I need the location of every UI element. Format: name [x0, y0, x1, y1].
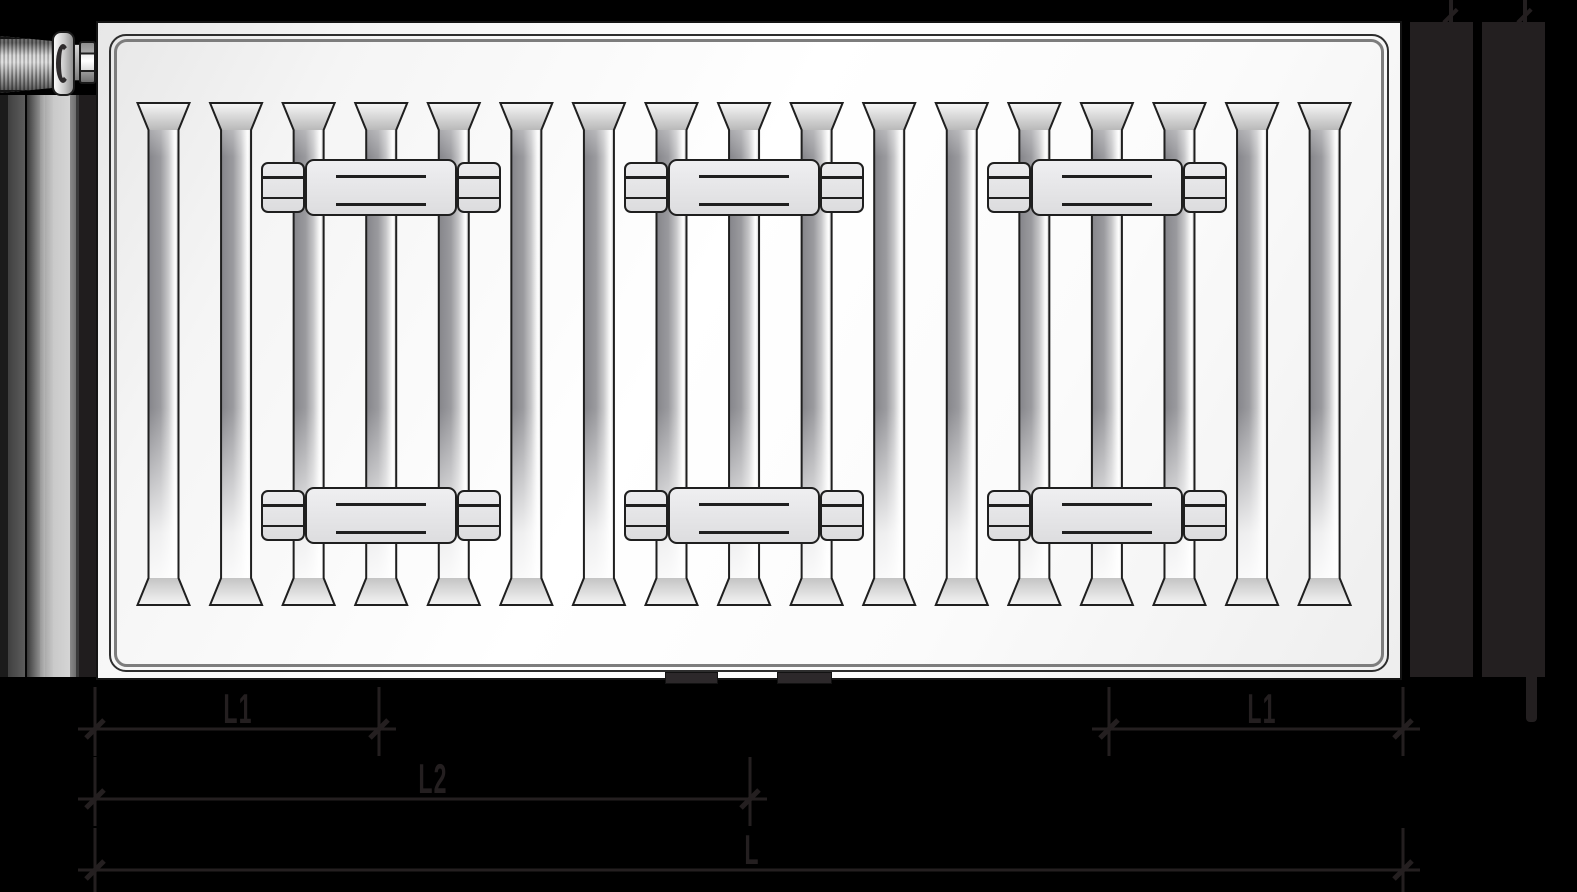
bracket-plate [668, 159, 820, 216]
radiator-front-panel [96, 21, 1402, 680]
plate-line [1062, 531, 1152, 534]
clamp-band-line [262, 525, 304, 528]
clamp-band-line [821, 504, 863, 507]
plate-line [336, 531, 426, 534]
clamp-band-line [821, 176, 863, 179]
clamp-band-line [458, 176, 500, 179]
clamp-band-line [458, 504, 500, 507]
dimension-label: L2 [418, 758, 447, 800]
clamp-band-line [821, 197, 863, 200]
bracket-clamp [624, 162, 668, 213]
clamp-band-line [821, 525, 863, 528]
plate-line [699, 503, 789, 506]
mounting-bracket [624, 159, 864, 216]
clamp-band-line [625, 197, 667, 200]
plate-line [1062, 203, 1152, 206]
mounting-bracket [624, 487, 864, 544]
thermostatic-head-icon [0, 36, 53, 93]
clamp-band-line [625, 176, 667, 179]
radiator-foot [665, 672, 718, 684]
bracket-clamp [820, 162, 864, 213]
left-side-strip [79, 95, 96, 677]
flange-recess [56, 44, 70, 83]
clamp-band-line [458, 525, 500, 528]
bracket-plate [1031, 159, 1183, 216]
bracket-clamp [261, 162, 305, 213]
panel-inner-border-highlight [114, 39, 1384, 667]
left-side-strip [8, 95, 25, 677]
clamp-band-line [988, 197, 1030, 200]
dimension-label: L [744, 829, 759, 871]
left-side-strip [45, 95, 53, 677]
bracket-clamp [1183, 162, 1227, 213]
bracket-clamp [820, 490, 864, 541]
bracket-clamp [457, 490, 501, 541]
clamp-band-line [262, 504, 304, 507]
clamp-band-line [458, 197, 500, 200]
bracket-clamp [987, 490, 1031, 541]
left-side-strip [27, 95, 40, 677]
plate-line [336, 503, 426, 506]
clamp-band-line [988, 176, 1030, 179]
right-side-panel-bar [1482, 22, 1545, 677]
plate-line [1062, 503, 1152, 506]
clamp-band-line [1184, 176, 1226, 179]
bracket-plate [305, 159, 457, 216]
bracket-plate [1031, 487, 1183, 544]
plate-line [336, 175, 426, 178]
bracket-clamp [457, 162, 501, 213]
left-side-strip [0, 95, 8, 677]
dimension-label: L1 [1247, 688, 1276, 730]
right-side-panel-bar [1410, 22, 1473, 677]
bracket-clamp [624, 490, 668, 541]
plate-line [699, 531, 789, 534]
clamp-band-line [1184, 504, 1226, 507]
bottom-connection-stub [1526, 677, 1537, 722]
connection-nut [79, 41, 96, 84]
bracket-clamp [1183, 490, 1227, 541]
clamp-band-line [1184, 525, 1226, 528]
left-side-strip [53, 95, 70, 677]
plate-line [699, 175, 789, 178]
mounting-bracket [987, 159, 1227, 216]
clamp-band-line [262, 176, 304, 179]
mounting-bracket [261, 487, 501, 544]
clamp-band-line [262, 197, 304, 200]
clamp-band-line [988, 525, 1030, 528]
bracket-plate [668, 487, 820, 544]
clamp-band-line [1184, 197, 1226, 200]
clamp-band-line [625, 504, 667, 507]
clamp-band-line [625, 525, 667, 528]
plate-line [336, 203, 426, 206]
dimension-label: L1 [223, 688, 252, 730]
plate-line [1062, 175, 1152, 178]
mounting-bracket [261, 159, 501, 216]
radiator-technical-drawing: L1L1L2L [0, 0, 1577, 892]
bracket-clamp [261, 490, 305, 541]
plate-line [699, 203, 789, 206]
radiator-foot [777, 672, 832, 684]
valve-flange [52, 31, 75, 96]
bracket-plate [305, 487, 457, 544]
bracket-clamp [987, 162, 1031, 213]
clamp-band-line [988, 504, 1030, 507]
mounting-bracket [987, 487, 1227, 544]
